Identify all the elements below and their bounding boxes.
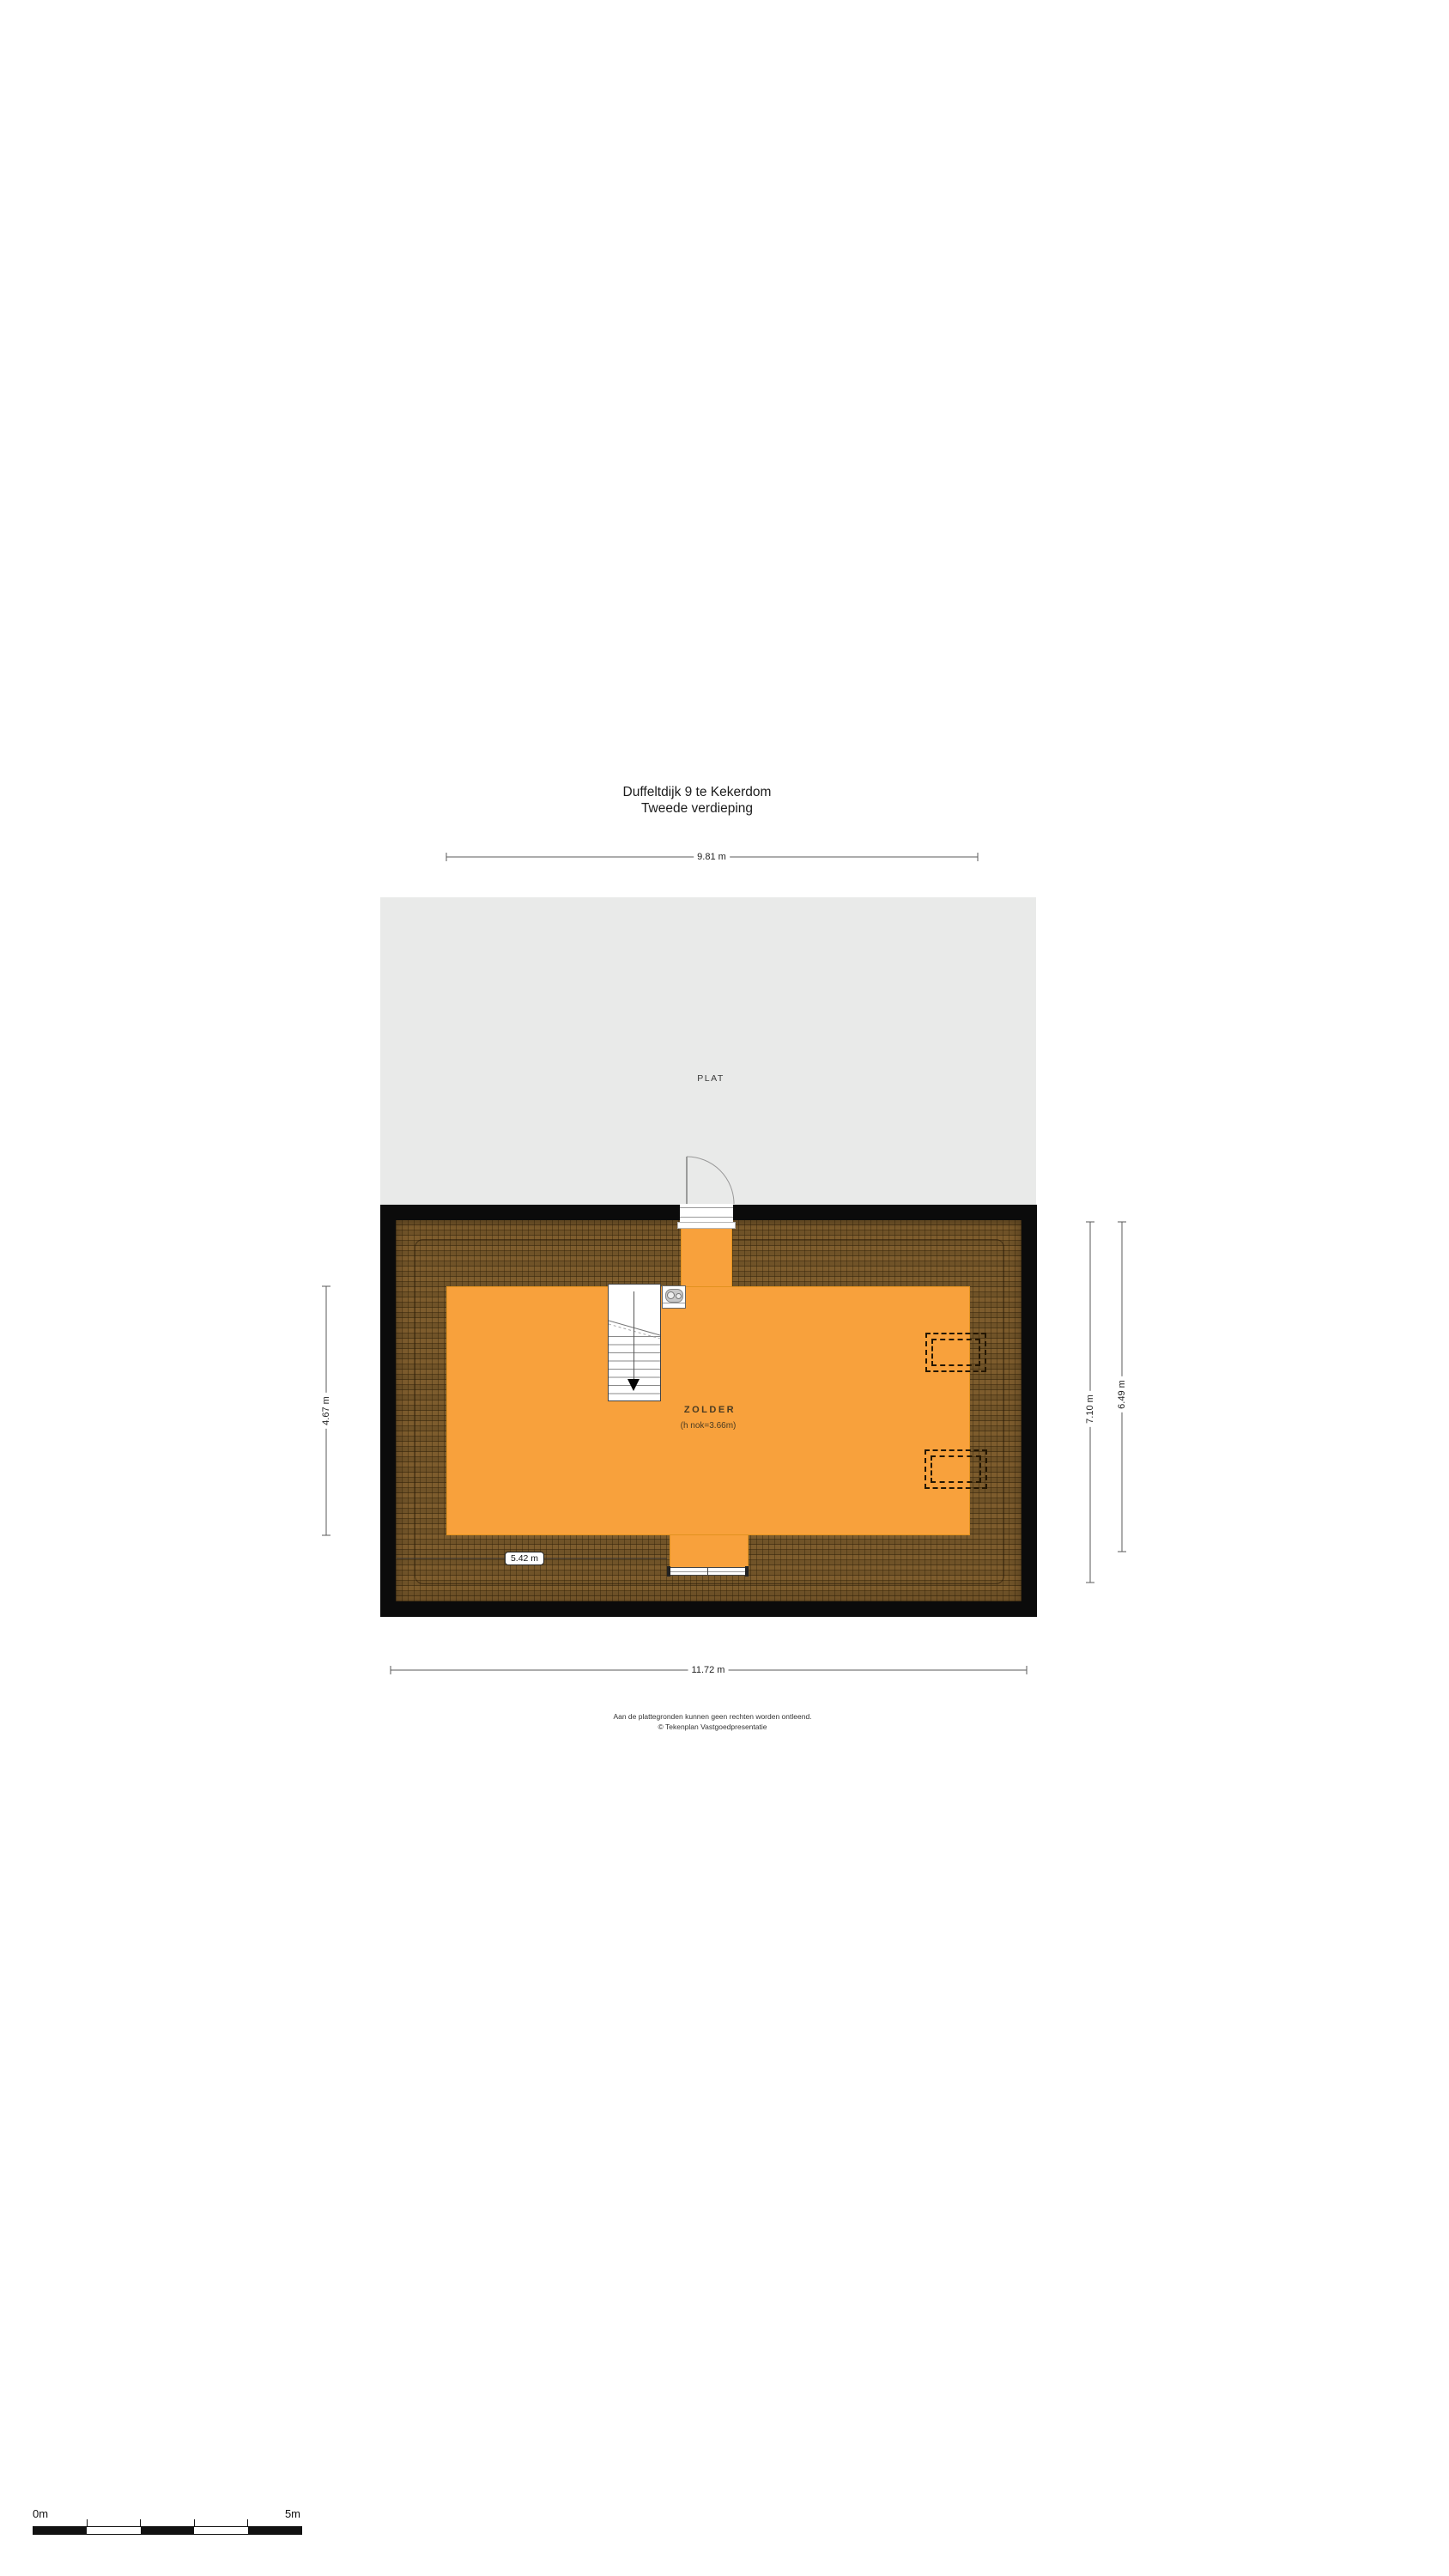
door-sill-strip (677, 1222, 736, 1229)
staircase (608, 1284, 661, 1401)
stair-cut-line (609, 1317, 660, 1343)
skylight-lower-inner (931, 1455, 981, 1483)
scalebar-tick (247, 2519, 248, 2527)
scalebar-segment (248, 2527, 301, 2534)
window-mullion (707, 1568, 708, 1575)
page-title: Duffeltdijk 9 te Kekerdom Tweede verdiep… (354, 784, 1040, 817)
window-jamb-right (745, 1566, 749, 1577)
unit-dial-large (667, 1291, 675, 1299)
attic-room-label: ZOLDER (581, 1405, 839, 1415)
scalebar-segment (141, 2527, 194, 2534)
skylight-upper (925, 1333, 986, 1372)
flat-roof-area (380, 897, 1036, 1205)
window-symbol (667, 1567, 749, 1576)
unit-lip (663, 1303, 685, 1303)
attic-dormer-recess (670, 1534, 749, 1569)
dimension-label-bottom-width: 11.72 m (688, 1665, 729, 1675)
ventilation-unit-icon (662, 1285, 686, 1309)
scalebar-labels: 0m 5m (33, 2507, 300, 2521)
floorplan-page: Duffeltdijk 9 te Kekerdom Tweede verdiep… (0, 0, 1449, 2576)
copyright-text: © Tekenplan Vastgoedpresentatie (369, 1722, 1056, 1731)
skylight-upper-inner (931, 1339, 980, 1366)
attic-corridor (681, 1222, 732, 1290)
dimension-label-left-height: 4.67 m (321, 1393, 331, 1429)
dimension-label-right-inner: 6.49 m (1117, 1376, 1127, 1413)
scalebar (33, 2526, 302, 2535)
scalebar-segment (33, 2527, 87, 2534)
dimension-label-interior-width: 5.42 m (505, 1552, 544, 1565)
door-threshold (680, 1204, 733, 1222)
scalebar-segment (87, 2527, 140, 2534)
stairs-down-arrow-icon (627, 1379, 640, 1391)
unit-dial-small (676, 1293, 682, 1299)
attic-ridge-height-label: (h nok=3.66m) (579, 1421, 837, 1431)
skylight-lower (925, 1449, 987, 1489)
dimension-label-top-width: 9.81 m (694, 852, 730, 862)
scalebar-start-label: 0m (33, 2507, 48, 2520)
dimension-label-right-outer: 7.10 m (1085, 1391, 1095, 1427)
flat-roof-label: PLAT (625, 1073, 797, 1084)
title-floor: Tweede verdieping (354, 800, 1040, 817)
scalebar-segment (194, 2527, 247, 2534)
scalebar-end-label: 5m (285, 2507, 300, 2520)
scalebar-tick (194, 2519, 195, 2527)
scalebar-tick (87, 2519, 88, 2527)
scalebar-tick (140, 2519, 141, 2527)
stair-walk-line (634, 1291, 634, 1388)
disclaimer-text: Aan de plattegronden kunnen geen rechten… (369, 1712, 1056, 1721)
title-address: Duffeltdijk 9 te Kekerdom (354, 784, 1040, 800)
window-jamb-left (667, 1566, 670, 1577)
